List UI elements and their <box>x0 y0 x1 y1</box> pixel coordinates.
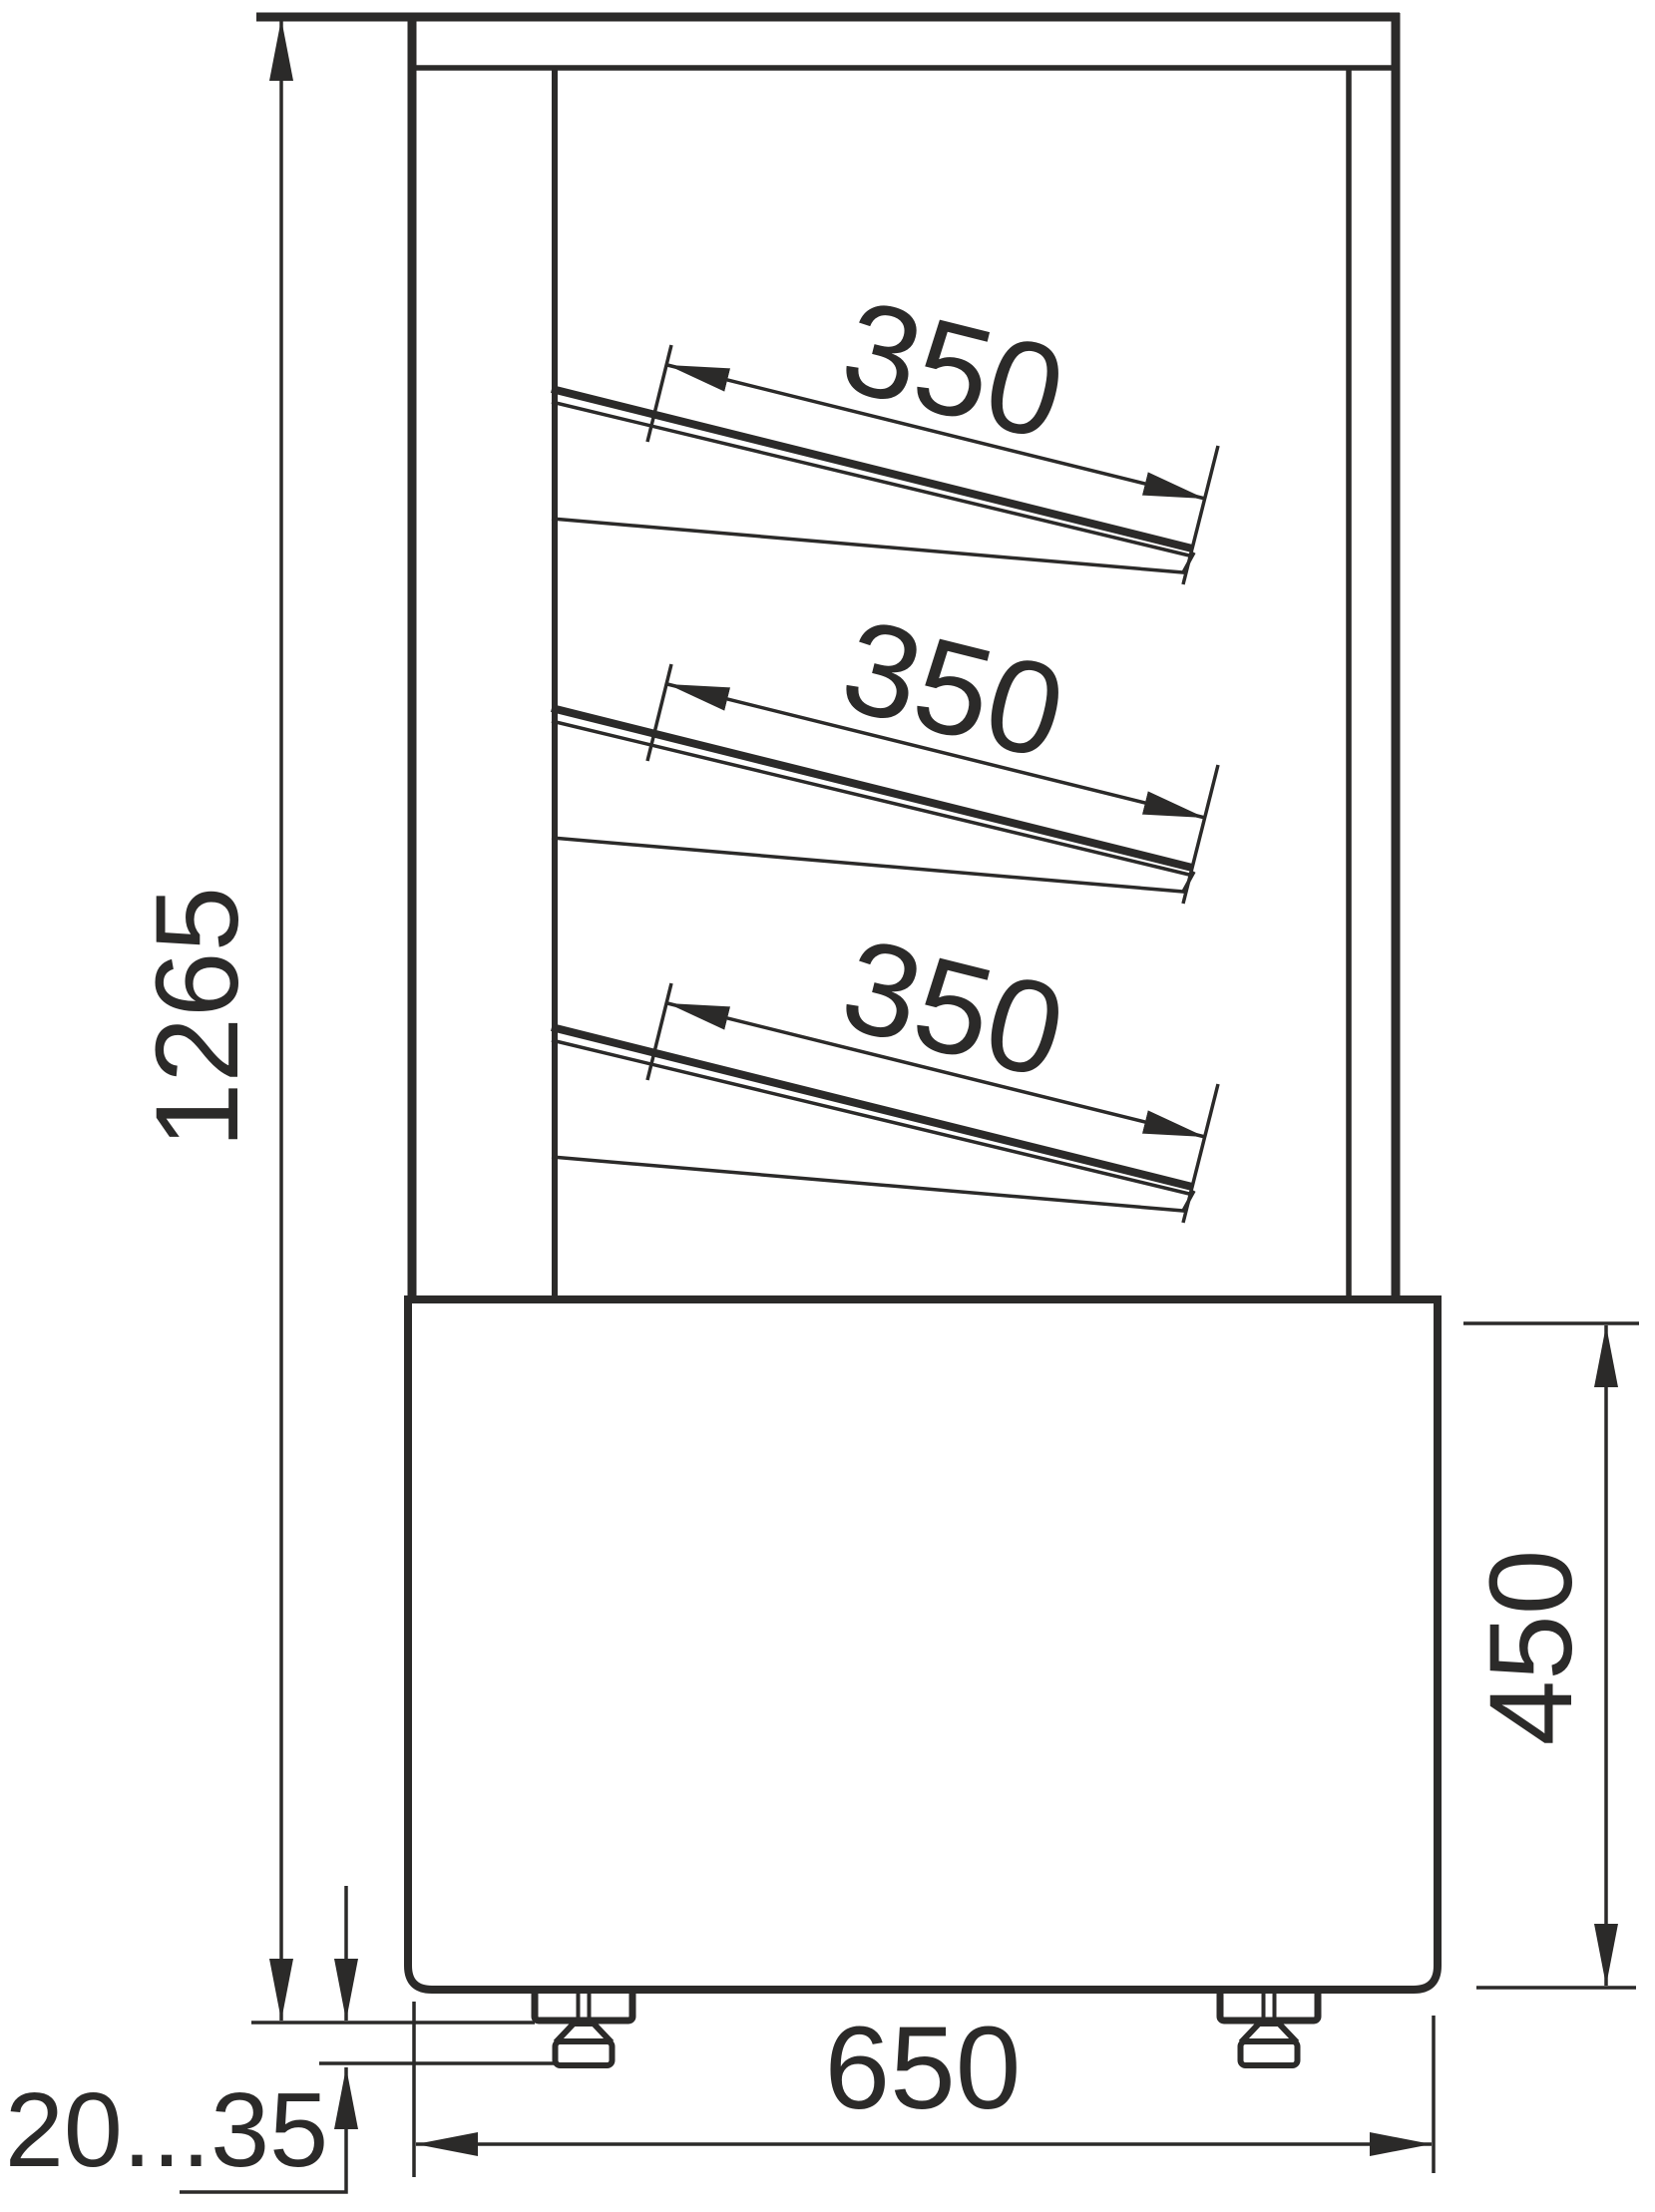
foot-screw <box>1264 1990 1275 2021</box>
overall-height-dimension-label: 1265 <box>132 887 263 1149</box>
foot-mount-block <box>535 1990 632 2021</box>
shelf-underside <box>552 721 1189 875</box>
shelf-1-depth-dimension-label: 350 <box>829 272 1077 468</box>
overall-height-dimension <box>251 19 535 2023</box>
extension-tick-right <box>1183 765 1218 904</box>
shelf-2-depth-dimension-label: 350 <box>829 591 1077 787</box>
extension-tick-right <box>1183 446 1218 584</box>
base-cabinet <box>408 1299 1438 1990</box>
extension-tick-right <box>1183 1084 1218 1223</box>
display-case-drawing: 1265 350 350 350 450 650 20...35 <box>0 0 1655 2212</box>
top-canopy <box>256 17 1400 68</box>
foot-pad <box>1241 2041 1298 2065</box>
foot-mount-block <box>1220 1990 1318 2021</box>
shelf-3-depth-dimension-label: 350 <box>829 911 1077 1106</box>
shelf-underside <box>552 1040 1189 1194</box>
adjustable-foot-left <box>535 1990 632 2065</box>
base-depth-dimension-label: 650 <box>825 2003 1022 2134</box>
base-height-dimension-label: 450 <box>1465 1550 1597 1746</box>
adjustable-foot-right <box>1220 1990 1318 2065</box>
foot-adjustment-dimension-label: 20...35 <box>5 2071 328 2189</box>
shelf-underside <box>552 402 1189 555</box>
foot-pad <box>556 2041 613 2065</box>
technical-drawing-page: 1265 350 350 350 450 650 20...35 <box>0 0 1655 2212</box>
foot-screw <box>579 1990 590 2021</box>
